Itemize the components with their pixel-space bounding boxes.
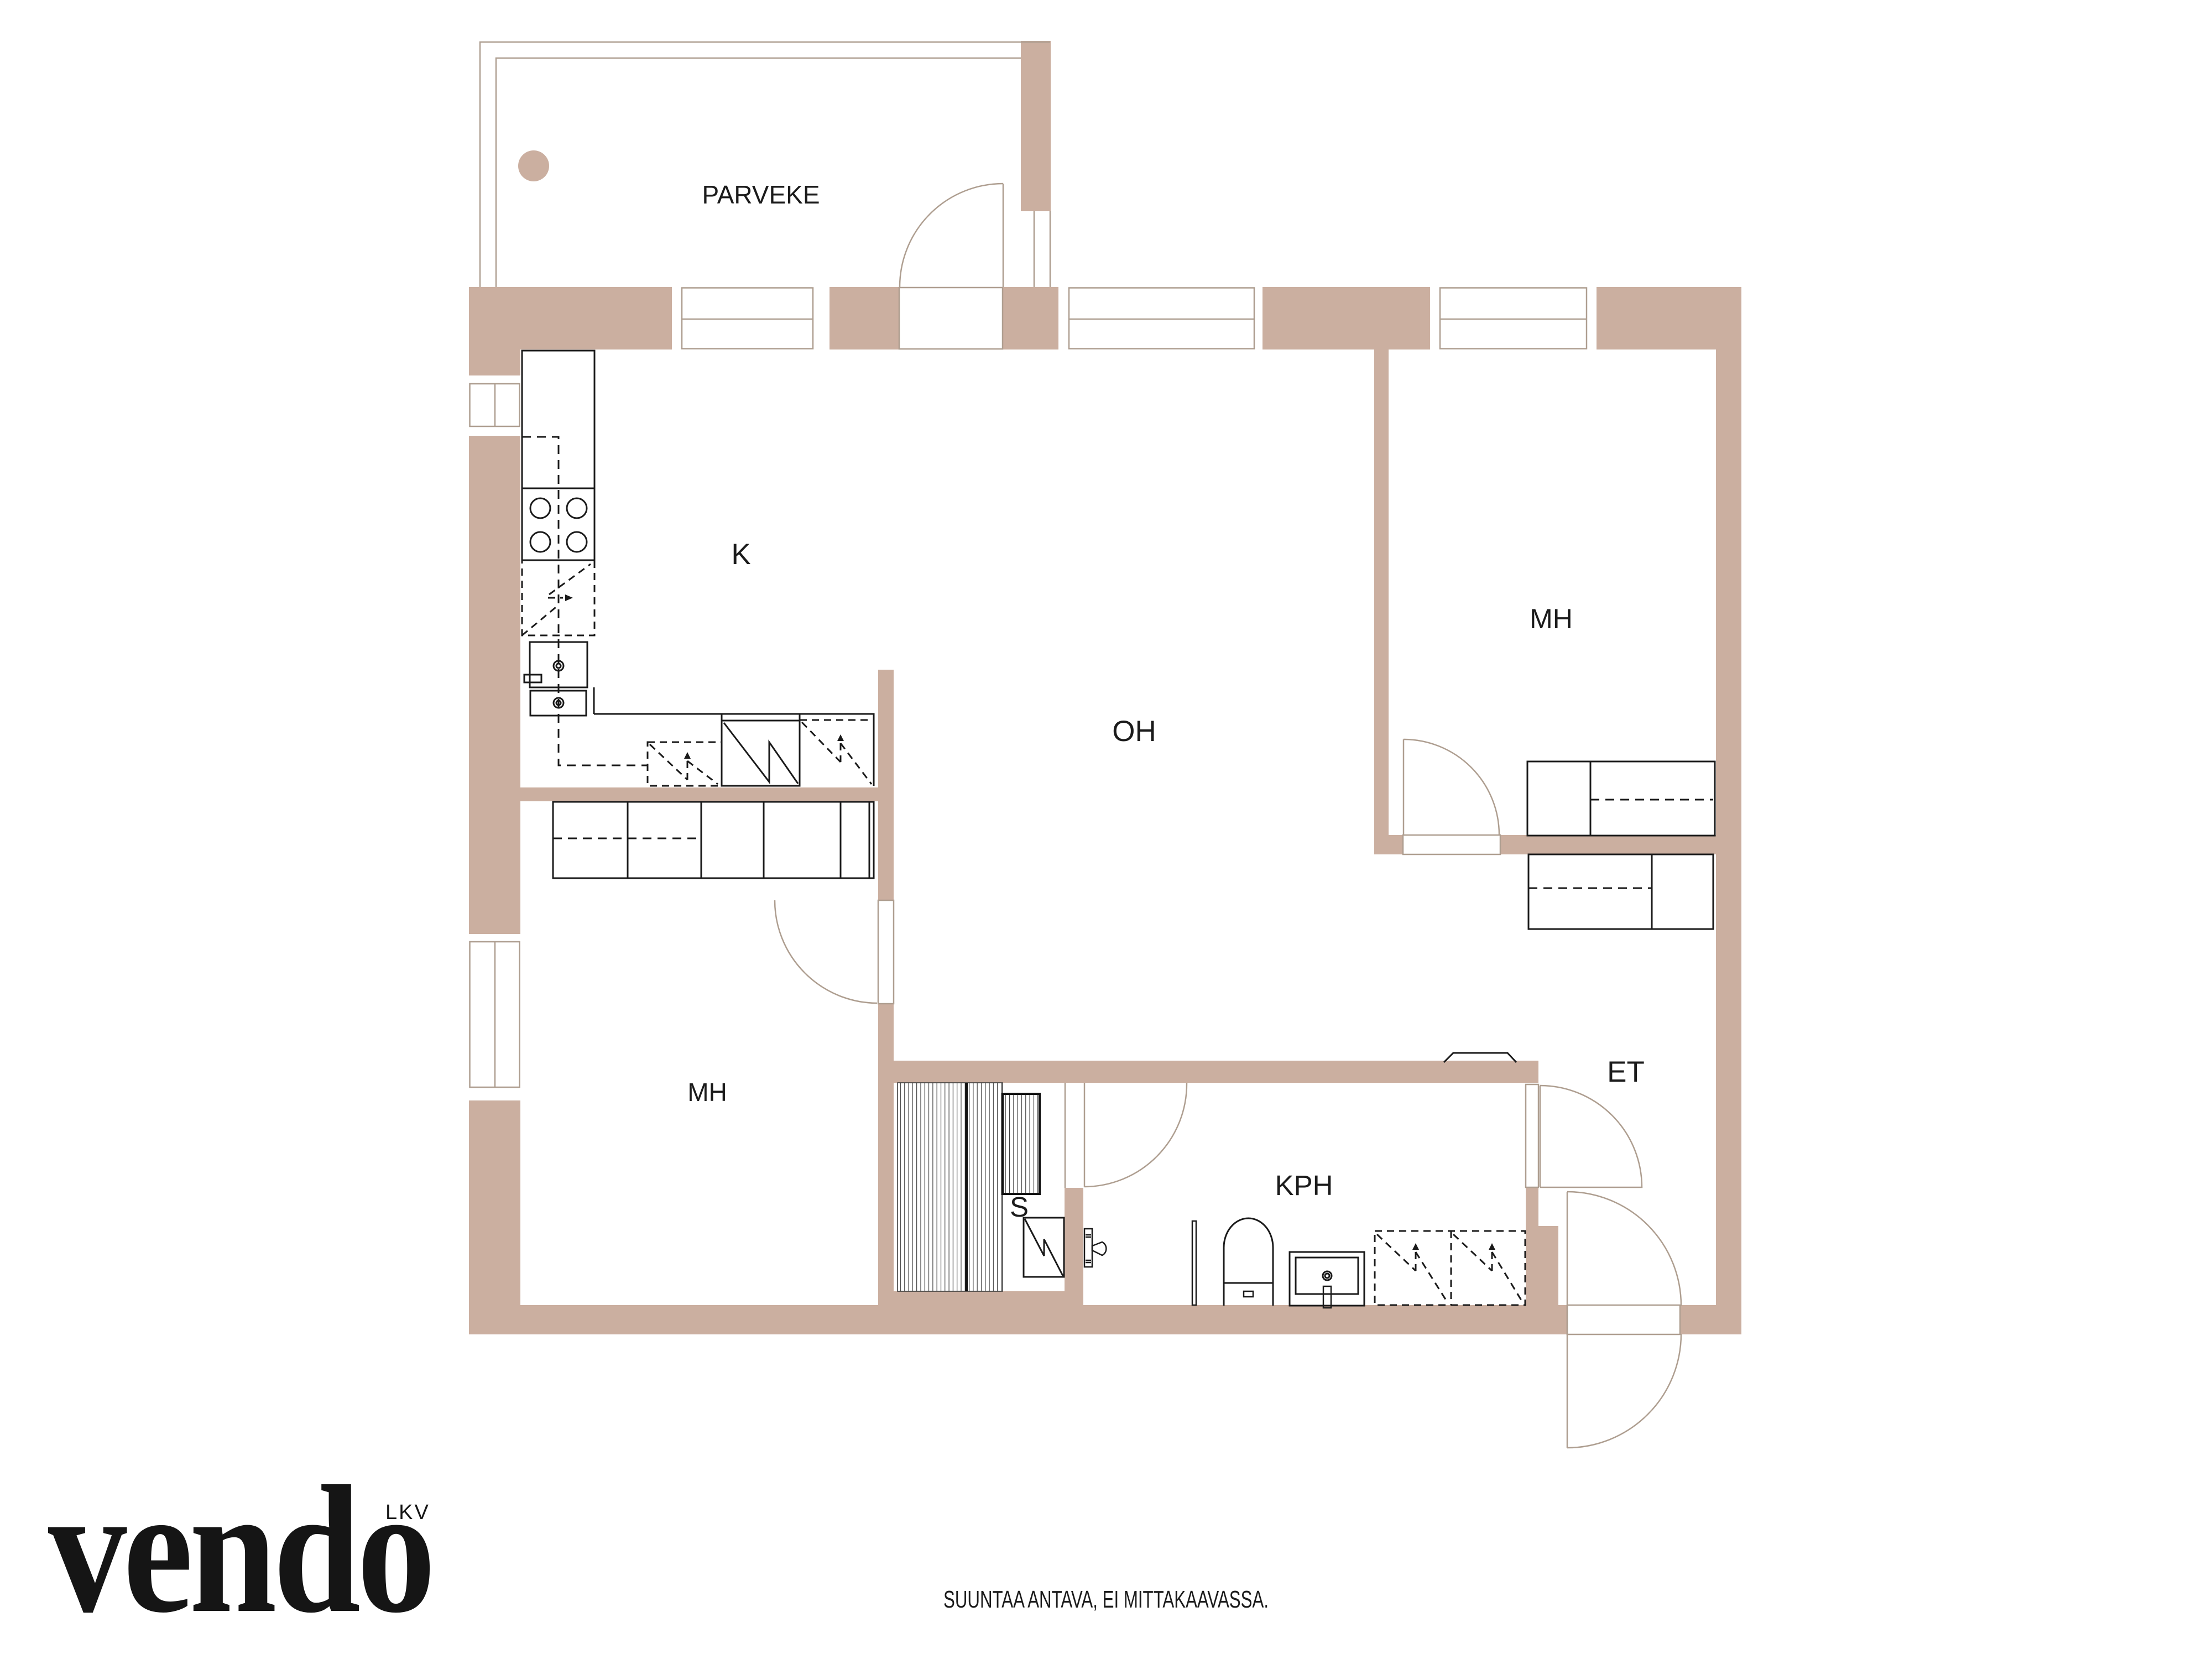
svg-text:vendo: vendo bbox=[48, 1449, 432, 1651]
svg-text:MH: MH bbox=[1530, 603, 1573, 634]
svg-text:KPH: KPH bbox=[1275, 1170, 1333, 1201]
svg-text:S: S bbox=[1010, 1191, 1029, 1223]
svg-text:LKV: LKV bbox=[385, 1501, 430, 1524]
svg-text:OH: OH bbox=[1112, 715, 1156, 748]
svg-text:ET: ET bbox=[1607, 1056, 1645, 1088]
svg-text:K: K bbox=[731, 538, 750, 571]
svg-text:MH: MH bbox=[687, 1078, 727, 1107]
svg-text:SUUNTAA ANTAVA, EI MITTAKAAVAS: SUUNTAA ANTAVA, EI MITTAKAAVASSA. bbox=[943, 1586, 1269, 1613]
svg-text:PARVEKE: PARVEKE bbox=[702, 180, 820, 209]
